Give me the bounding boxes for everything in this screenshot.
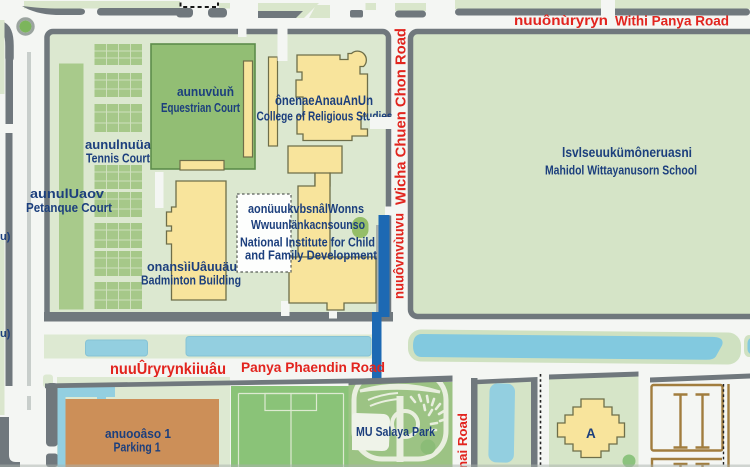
svg-text:nuuôvnvùuvu: nuuôvnvùuvu (391, 213, 407, 299)
svg-text:aunulUaov: aunulUaov (30, 186, 105, 201)
svg-text:National Institute for Child: National Institute for Child (240, 236, 375, 250)
svg-text:nuuônùryryn: nuuônùryryn (514, 13, 608, 28)
svg-text:aunuvùuň: aunuvùuň (177, 84, 234, 99)
svg-text:Panya Phaendin Road: Panya Phaendin Road (241, 359, 385, 375)
svg-text:lsvlseuukümôneruasni: lsvlseuukümôneruasni (562, 144, 692, 160)
svg-text:Wwuunlänkacnsounso: Wwuunlänkacnsounso (251, 217, 365, 232)
svg-text:A: A (586, 426, 596, 441)
svg-text:aonüuukvbsnâlWonns: aonüuukvbsnâlWonns (248, 201, 364, 216)
svg-text:Parking 1: Parking 1 (114, 441, 161, 455)
svg-text:anuooâso 1: anuooâso 1 (105, 426, 171, 441)
svg-text:and Family Development: and Family Development (245, 249, 378, 263)
svg-text:Withi Panya Road: Withi Panya Road (615, 14, 729, 29)
svg-text:Badminton Building: Badminton Building (141, 274, 241, 288)
svg-text:u): u) (0, 231, 11, 243)
svg-text:Petanque Court: Petanque Court (26, 201, 113, 215)
svg-text:aunulnuüa: aunulnuüa (85, 137, 152, 152)
svg-text:Tennis Court: Tennis Court (86, 152, 151, 166)
svg-text:MU Salaya Park: MU Salaya Park (356, 424, 436, 439)
svg-text:onansìiUâuuäu: onansìiUâuuäu (147, 259, 237, 274)
svg-text:u): u) (0, 328, 11, 340)
svg-text:nuuÛryrynkiiuâu: nuuÛryrynkiiuâu (110, 359, 226, 378)
svg-text:ônenaeAnauAnUn: ônenaeAnauAnUn (275, 93, 373, 108)
svg-text:nai Road: nai Road (455, 413, 470, 467)
svg-text:Equestrian Court: Equestrian Court (161, 101, 241, 115)
svg-text:Wicha Chuen Chon Road: Wicha Chuen Chon Road (394, 28, 410, 205)
svg-text:Mahidol Wittayanusorn School: Mahidol Wittayanusorn School (545, 163, 697, 178)
